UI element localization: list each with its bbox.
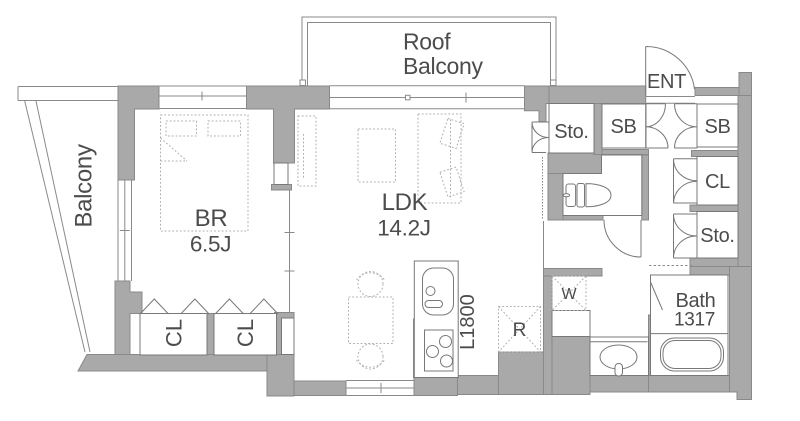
svg-text:CL: CL: [705, 171, 730, 193]
svg-text:SB: SB: [704, 116, 730, 138]
svg-text:ENT: ENT: [647, 71, 686, 93]
svg-text:Sto.: Sto.: [700, 225, 734, 247]
svg-text:CL: CL: [162, 319, 187, 347]
svg-text:Sto.: Sto.: [554, 121, 588, 143]
svg-text:14.2J: 14.2J: [377, 216, 431, 241]
svg-text:W: W: [561, 286, 577, 303]
svg-text:Roof: Roof: [403, 29, 451, 55]
svg-text:1317: 1317: [674, 310, 715, 331]
svg-text:L1800: L1800: [457, 294, 479, 350]
svg-text:6.5J: 6.5J: [190, 232, 231, 257]
svg-text:LDK: LDK: [382, 189, 428, 216]
svg-text:Balcony: Balcony: [403, 53, 484, 79]
svg-text:Balcony: Balcony: [71, 144, 98, 228]
svg-text:CL: CL: [233, 319, 258, 347]
svg-text:R: R: [513, 320, 527, 341]
svg-text:BR: BR: [195, 205, 228, 232]
svg-text:SB: SB: [610, 116, 636, 138]
